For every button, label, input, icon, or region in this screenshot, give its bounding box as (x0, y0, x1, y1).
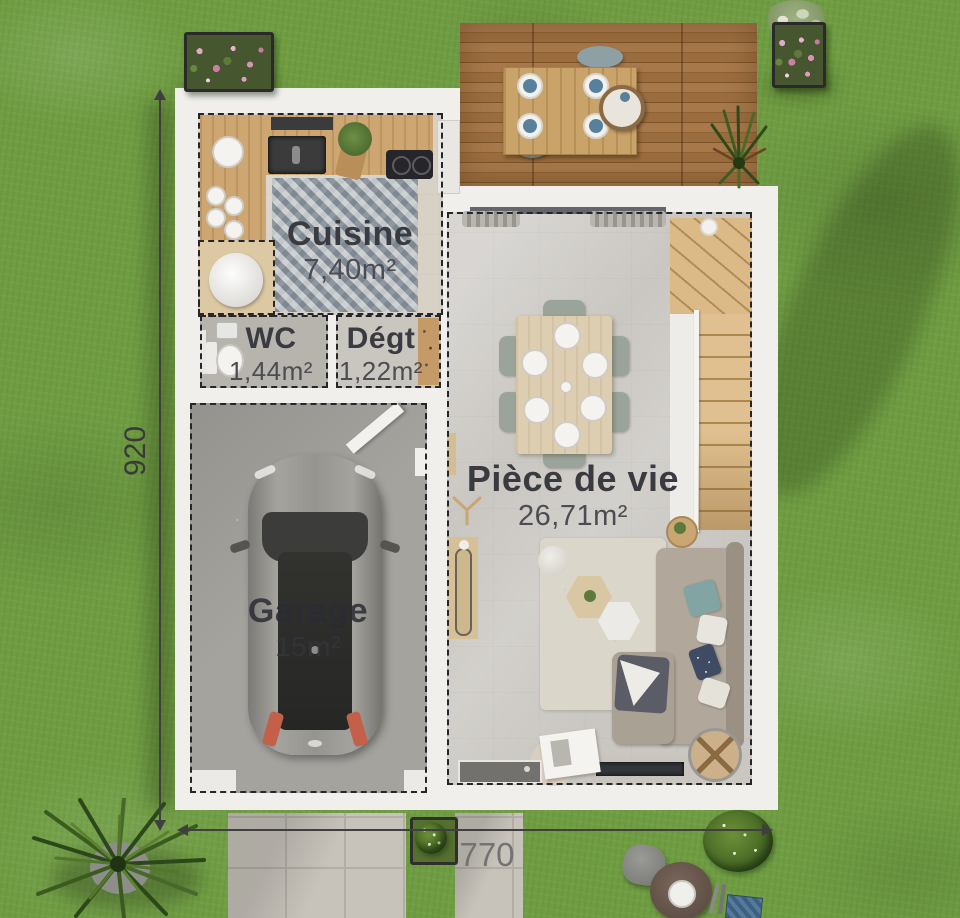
vase (459, 540, 469, 550)
dish (224, 220, 244, 240)
arrow-up-icon (154, 89, 166, 100)
toilet-bowl (216, 344, 244, 377)
kitchen-hood (271, 117, 333, 130)
table-plant (584, 590, 596, 602)
wc-sink (216, 322, 238, 339)
sofa-backrest (726, 542, 744, 748)
arrow-down-icon (154, 820, 166, 831)
dish (206, 208, 226, 228)
pillow-white (696, 614, 728, 646)
dimension-width: 770 (437, 836, 537, 874)
kitchen-tile-motif (272, 178, 418, 312)
rattan-chair (688, 728, 742, 782)
burner (412, 156, 431, 175)
ceiling-fan-icon (450, 490, 484, 526)
water-heater (209, 253, 263, 307)
dimension-height: 920 (119, 391, 153, 511)
dinner-plate (553, 421, 581, 449)
grass-tuft-icon (708, 105, 770, 189)
door-jamb (415, 448, 427, 476)
dimension-line-vertical (159, 98, 161, 826)
flower-planter-icon (772, 22, 826, 88)
garage-pier-right (404, 770, 427, 793)
terrace-plate (517, 113, 543, 139)
side-table-plant (674, 522, 686, 534)
dinner-plate (521, 349, 549, 377)
staircase-shade (698, 430, 752, 530)
wall-shelf (447, 433, 456, 475)
terrace-plate (517, 73, 543, 99)
car-antenna (311, 646, 319, 654)
dinner-plate (523, 396, 551, 424)
car-badge (308, 740, 322, 747)
front-door (458, 760, 542, 784)
tv-screen (596, 762, 684, 776)
arrow-right-icon (762, 824, 773, 836)
kitchen-faucet (292, 146, 300, 164)
garden-table-plate (668, 880, 696, 908)
dinner-plate (579, 394, 607, 422)
floor-plan: Cuisine 7,40m² WC 1,44m² Dégt 1,22m² Piè… (0, 0, 960, 918)
curtain-right (590, 211, 666, 227)
entry-bench (455, 548, 472, 636)
door-handle (524, 766, 530, 772)
dinner-plate (581, 351, 609, 379)
terrace-cup (620, 92, 630, 102)
degt-wardrobe (418, 318, 439, 385)
burner (392, 156, 411, 175)
ceiling-detector (700, 218, 718, 236)
flower-planter-icon (184, 32, 274, 92)
dish (224, 196, 244, 216)
dish (206, 186, 226, 206)
dimension-line-horizontal (186, 829, 770, 831)
arrow-left-icon (177, 824, 188, 836)
kitchen-plant (338, 122, 372, 156)
palm-tree-icon (28, 798, 208, 918)
terrace-chair-top (577, 46, 623, 68)
fridge (437, 120, 460, 194)
pouf (538, 546, 568, 576)
garden-mat (725, 894, 763, 918)
curtain-left (462, 211, 520, 227)
dinner-plate (553, 322, 581, 350)
garage-pier-left (190, 770, 236, 793)
console-item (550, 739, 571, 767)
dish (212, 136, 244, 168)
teapot (560, 381, 572, 393)
car-roof (278, 552, 352, 730)
bush-icon (703, 810, 773, 872)
